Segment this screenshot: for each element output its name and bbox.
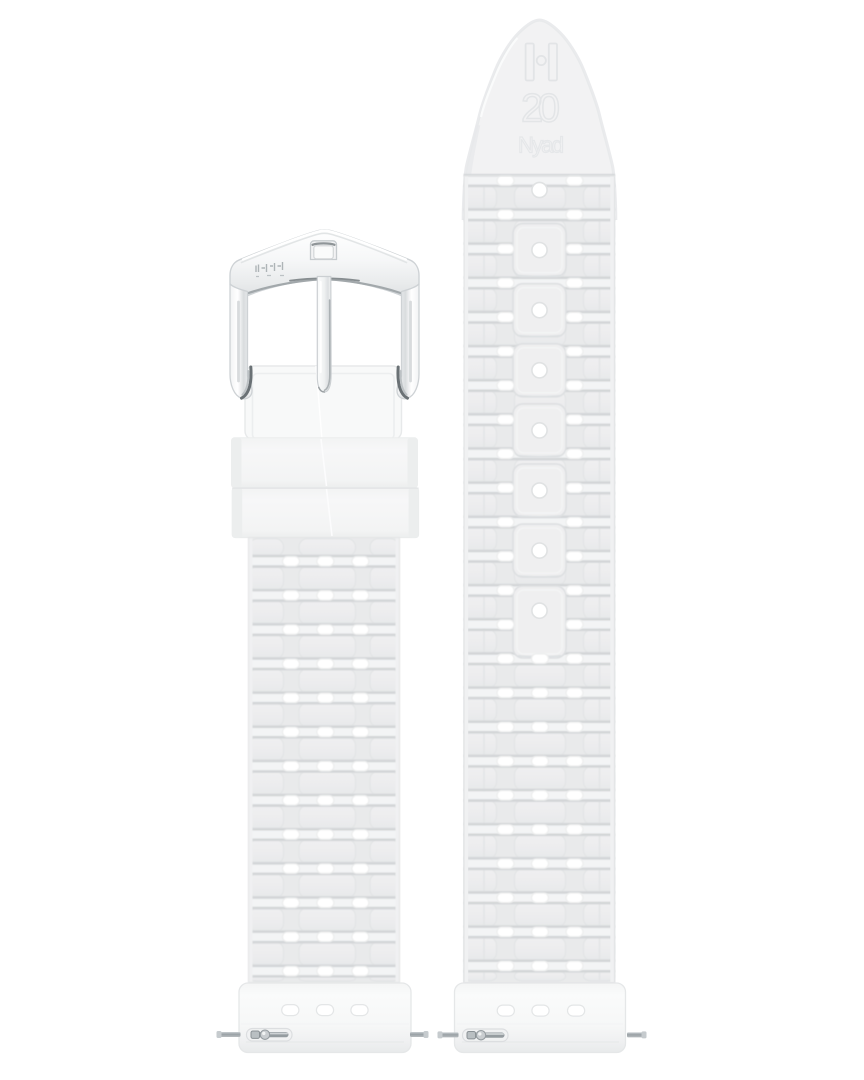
svg-text:20: 20 (521, 87, 560, 131)
svg-text:Nyad: Nyad (518, 133, 564, 158)
